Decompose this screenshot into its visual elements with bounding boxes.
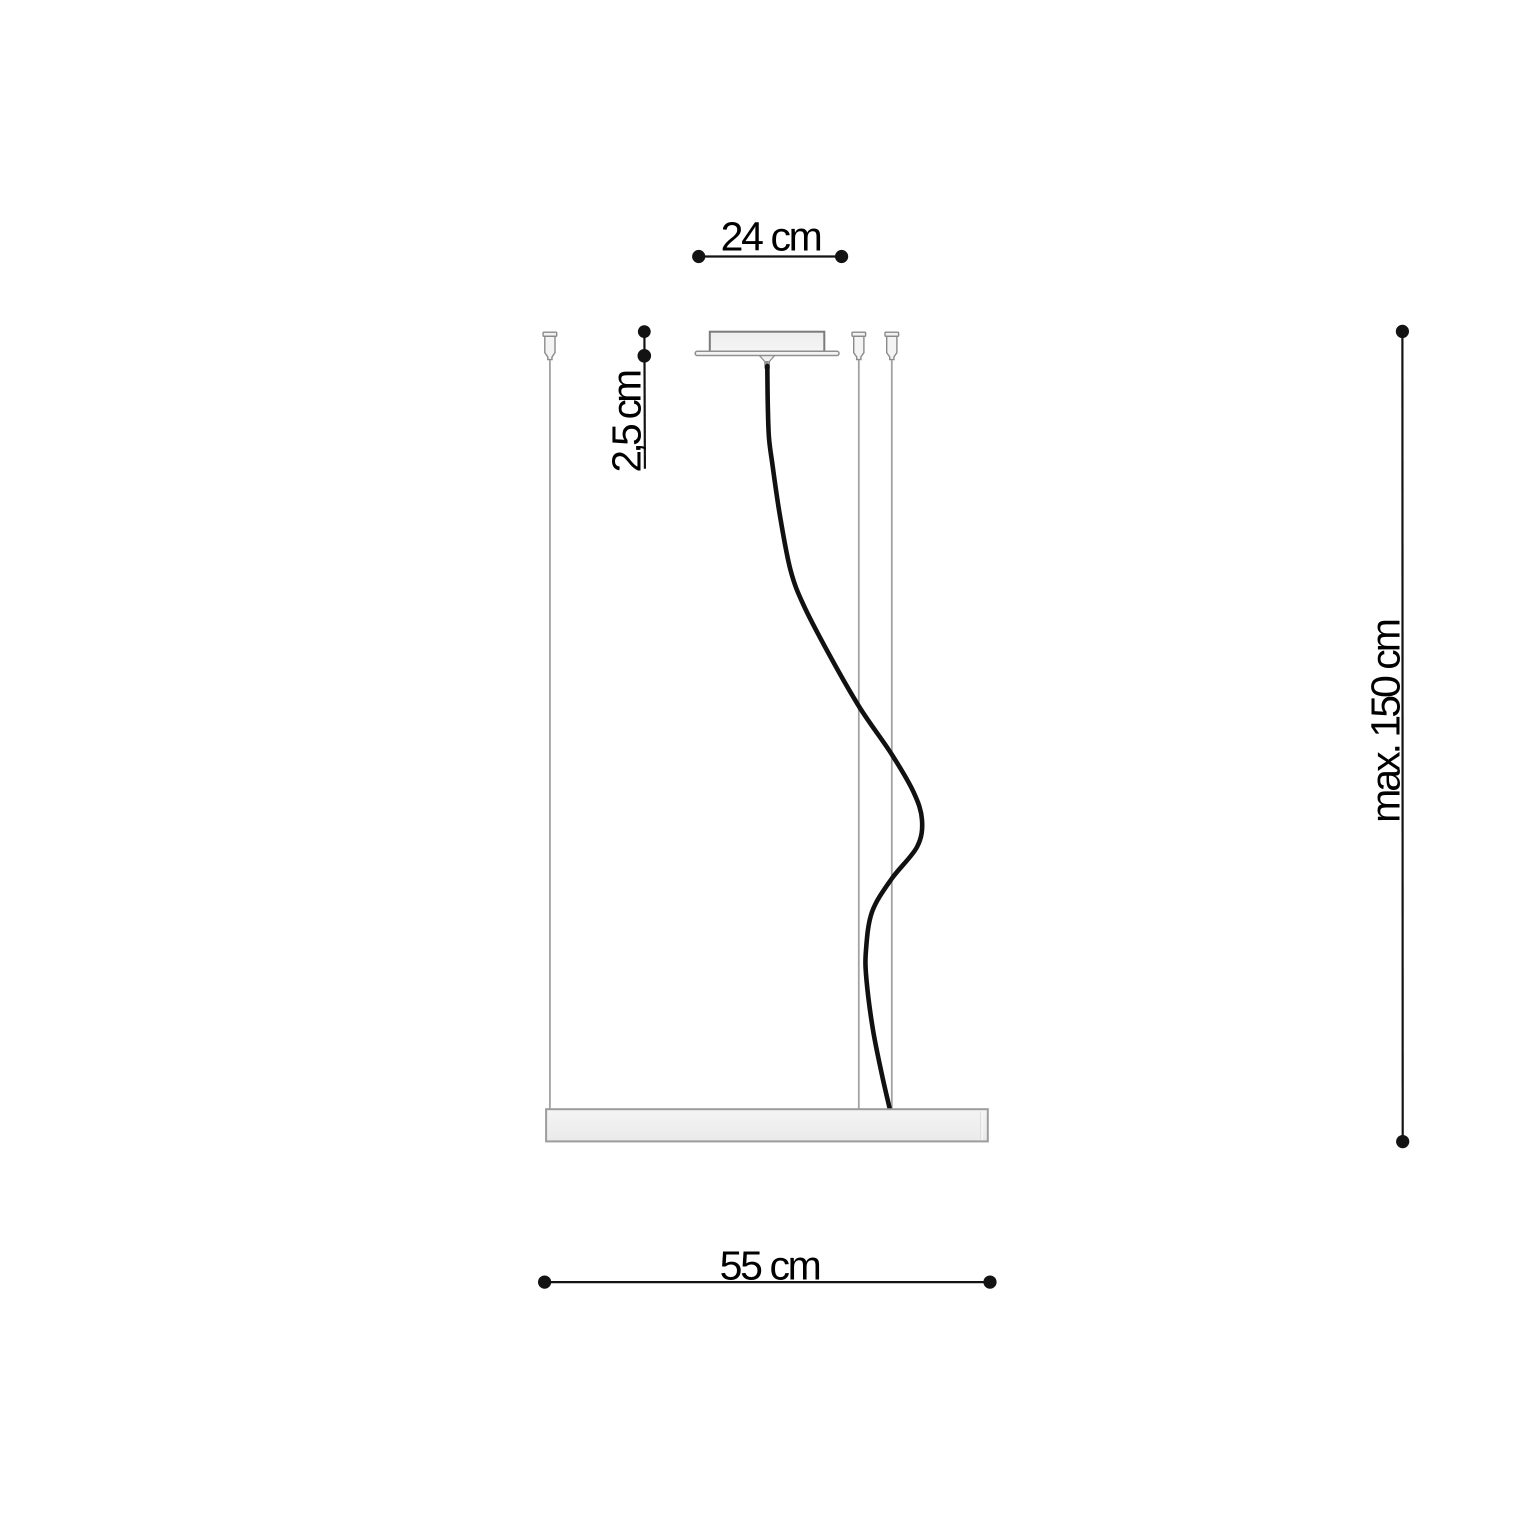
svg-text:2,5 cm: 2,5 cm xyxy=(604,371,650,473)
svg-text:55 cm: 55 cm xyxy=(720,1243,820,1289)
svg-text:max. 150 cm: max. 150 cm xyxy=(1363,620,1409,823)
svg-text:24 cm: 24 cm xyxy=(721,214,821,260)
